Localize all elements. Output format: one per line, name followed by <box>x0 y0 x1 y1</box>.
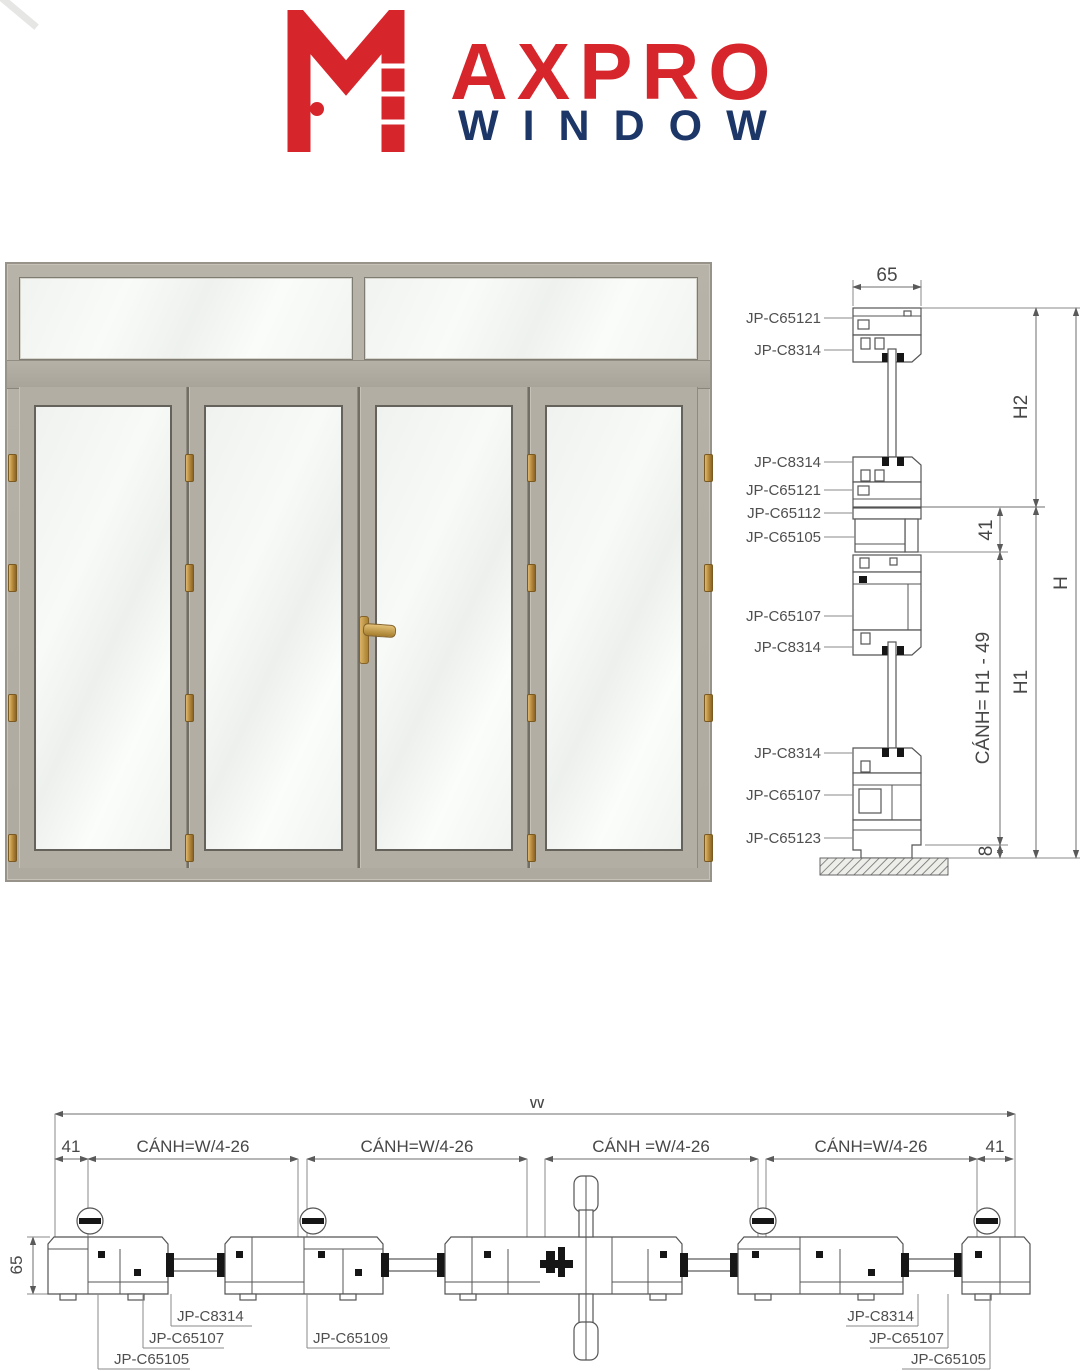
door-leaf-2 <box>187 387 357 868</box>
hinge-icon <box>527 834 536 862</box>
door-handle-icon <box>363 623 397 638</box>
maxpro-door-spec-sheet: { "brand": { "wordmark_red": "AXPRO", "w… <box>0 0 1080 1371</box>
hs-label-right-c65105: JP-C65105 <box>911 1351 986 1368</box>
vs-label: JP-C65107 <box>746 608 821 625</box>
door-product-render <box>5 262 712 882</box>
vs-label: JP-C65112 <box>747 505 821 522</box>
door-leaf-4-glass <box>545 405 683 851</box>
hs-hinge-icons <box>77 1208 1000 1234</box>
hs-label-right-c8314: JP-C8314 <box>847 1308 914 1325</box>
vs-label: JP-C8314 <box>754 454 821 471</box>
hs-dim-65: 65 <box>7 1256 26 1275</box>
transom-pane-left <box>19 277 353 360</box>
vs-dim-sash: CÁNH= H1 - 49 <box>973 632 994 765</box>
hinge-icon <box>185 564 194 592</box>
vs-dim-h2: H2 <box>1011 395 1032 419</box>
vs-dim-h: H <box>1051 576 1072 590</box>
hinge-icon <box>185 694 194 722</box>
hinge-icon <box>527 694 536 722</box>
hs-dim-w: W <box>529 1099 545 1112</box>
brand-wordmark-axpro: AXPRO <box>450 32 780 112</box>
vs-label: JP-C65123 <box>746 830 821 847</box>
hs-label-left-c65107: JP-C65107 <box>149 1330 224 1347</box>
vs-dim-65: 65 <box>876 265 897 286</box>
maxpro-logo: AXPRO WINDOW <box>286 6 826 158</box>
vs-label: JP-C65121 <box>746 310 821 327</box>
transom <box>19 277 698 360</box>
vs-profiles <box>820 308 948 875</box>
vs-dim-h1: H1 <box>1011 670 1032 694</box>
corner-artifact <box>0 0 39 30</box>
vs-label: JP-C8314 <box>754 342 821 359</box>
door-leaf-2-glass <box>204 405 342 851</box>
hinge-icon <box>704 454 713 482</box>
vertical-section-diagram: JP-C65121 JP-C8314 JP-C8314 JP-C65121 JP… <box>740 250 1080 910</box>
vs-dim-41: 41 <box>976 519 997 540</box>
hinge-icon <box>8 564 17 592</box>
vs-dim-8: 8 <box>976 846 997 857</box>
hs-dim-41-right: 41 <box>986 1137 1005 1156</box>
hs-dim-leaf-4: CÁNH=W/4-26 <box>815 1137 928 1156</box>
hs-part-labels: JP-C8314 JP-C65107 JP-C65105 JP-C65109 J… <box>98 1294 990 1369</box>
door-leaf-1 <box>19 387 187 868</box>
vs-part-labels: JP-C65121 JP-C8314 JP-C8314 JP-C65121 JP… <box>746 310 855 847</box>
maxpro-m-logo-icon <box>286 10 446 155</box>
hinge-icon <box>8 454 17 482</box>
hinge-icon <box>527 454 536 482</box>
vs-label: JP-C65107 <box>746 787 821 804</box>
horizontal-section-diagram: W 41 CÁNH=W/4-26 CÁNH=W/4-26 CÁNH =W/4-2… <box>0 1099 1080 1371</box>
hs-dim-41-left: 41 <box>62 1137 81 1156</box>
hinge-icon <box>704 694 713 722</box>
hinge-icon <box>8 694 17 722</box>
vs-label: JP-C65105 <box>746 529 821 546</box>
hs-dim-leaf-2: CÁNH=W/4-26 <box>361 1137 474 1156</box>
vs-label: JP-C8314 <box>754 745 821 762</box>
hinge-icon <box>185 454 194 482</box>
hinge-icon <box>8 834 17 862</box>
hinge-icon <box>704 564 713 592</box>
vs-label: JP-C8314 <box>754 639 821 656</box>
hs-label-center-c65109: JP-C65109 <box>313 1330 388 1347</box>
hs-label-right-c65107: JP-C65107 <box>869 1330 944 1347</box>
hs-label-left-c8314: JP-C8314 <box>177 1308 244 1325</box>
hs-label-left-c65105: JP-C65105 <box>114 1351 189 1368</box>
door-leaf-4 <box>528 387 698 868</box>
transom-rail <box>7 360 710 389</box>
hs-dim-leaf-1: CÁNH=W/4-26 <box>137 1137 250 1156</box>
vs-label: JP-C65121 <box>746 482 821 499</box>
door-leaf-1-glass <box>34 405 172 851</box>
brand-wordmark-window: WINDOW <box>458 105 791 148</box>
hinge-icon <box>704 834 713 862</box>
hinge-icon <box>527 564 536 592</box>
hs-dim-leaf-3: CÁNH =W/4-26 <box>592 1137 710 1156</box>
transom-pane-right <box>364 277 698 360</box>
hinge-icon <box>185 834 194 862</box>
